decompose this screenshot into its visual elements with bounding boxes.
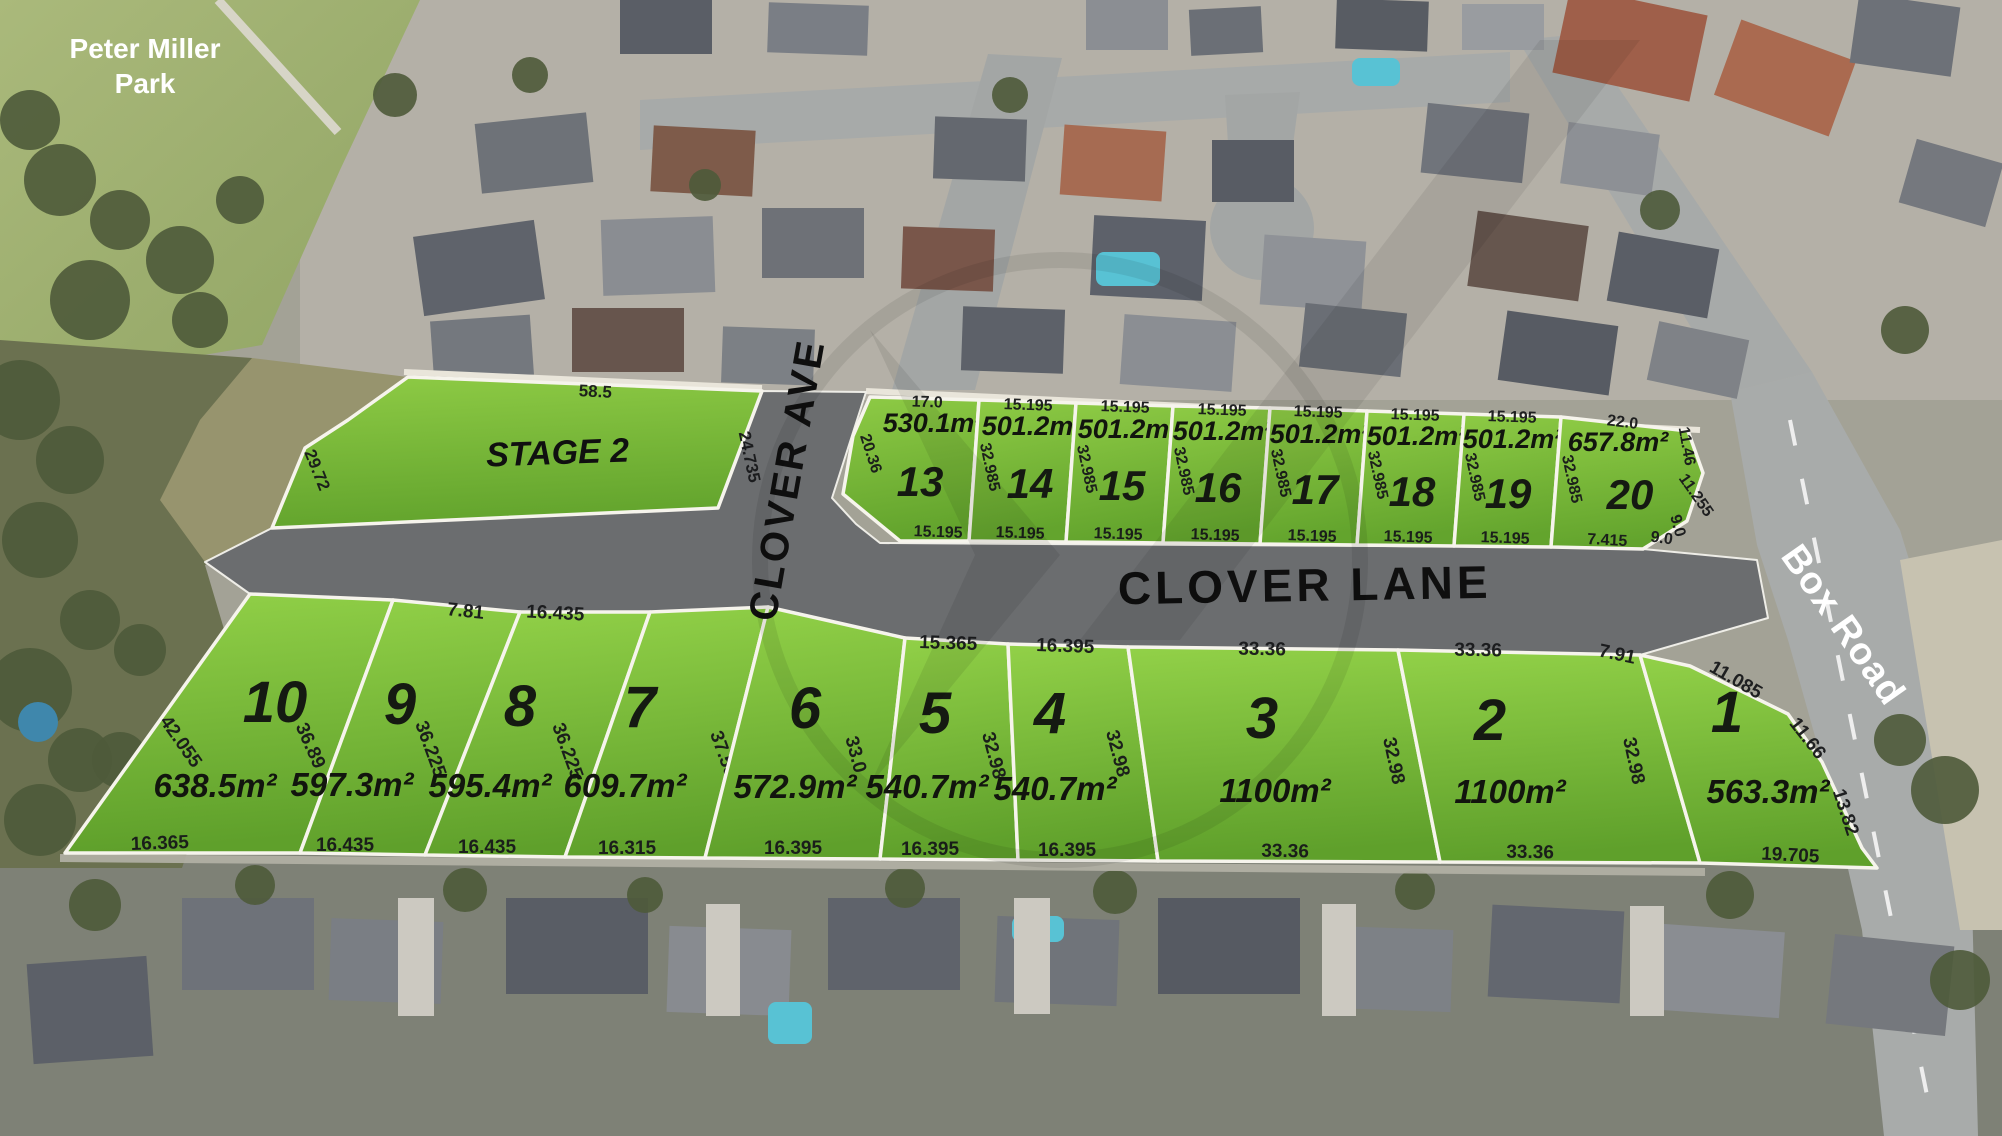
lot-15-area: 501.2m² [1078, 414, 1180, 444]
house-roof [1488, 905, 1625, 1004]
lot-4-area: 540.7m² [994, 770, 1118, 807]
dimension-label: 33.36 [1261, 841, 1309, 863]
house-roof [828, 898, 960, 990]
tree [1911, 756, 1979, 824]
dimension-label: 16.435 [526, 602, 586, 626]
tree [627, 877, 663, 913]
tree [992, 77, 1028, 113]
house-roof [572, 308, 684, 372]
tree [60, 590, 120, 650]
lot-20-area: 657.8m² [1568, 427, 1670, 457]
house-roof [961, 306, 1065, 374]
dimension-label: 16.365 [130, 832, 189, 855]
tree [512, 57, 548, 93]
tree [443, 868, 487, 912]
dimension-label: 15.195 [1480, 529, 1530, 548]
lot-8-number: 8 [504, 674, 537, 739]
dimension-label: 15.195 [1100, 398, 1150, 417]
tree [4, 784, 76, 856]
tree [235, 865, 275, 905]
lot-7-area: 609.7m² [564, 767, 688, 804]
lot-18-number: 18 [1389, 468, 1436, 515]
dimension-label: 58.5 [578, 381, 612, 402]
dimension-label: 15.195 [1093, 525, 1143, 544]
tree [1874, 714, 1926, 766]
house-roof [1462, 4, 1544, 50]
house-roof [1560, 122, 1660, 196]
lot-10-area: 638.5m² [154, 767, 278, 804]
house-roof [1158, 898, 1300, 994]
tree [90, 190, 150, 250]
house-roof [1086, 0, 1168, 50]
dimension-label: 16.435 [458, 837, 517, 858]
lot-19-number: 19 [1485, 470, 1532, 517]
dimension-label: 15.195 [1197, 401, 1247, 420]
house-roof [1335, 0, 1429, 52]
dimension-label: 33.36 [1506, 842, 1554, 864]
lot-15-number: 15 [1099, 462, 1146, 509]
house-roof [27, 956, 154, 1064]
lot-9-area: 597.3m² [291, 766, 415, 803]
lot-3-number: 3 [1246, 686, 1278, 751]
dimension-label: 19.705 [1761, 844, 1821, 868]
tree [114, 624, 166, 676]
house-roof [620, 0, 712, 54]
tree [689, 169, 721, 201]
house-roof [1060, 125, 1167, 202]
house-roof [1657, 924, 1785, 1018]
house-roof [506, 898, 648, 994]
tree [36, 426, 104, 494]
house-roof [1120, 314, 1237, 392]
driveway [706, 904, 740, 1016]
tree [1881, 306, 1929, 354]
tree [172, 292, 228, 348]
tree [0, 90, 60, 150]
stage2-label: STAGE 2 [486, 432, 630, 475]
dimension-label: 33.36 [1454, 640, 1502, 662]
house-roof [1212, 140, 1294, 202]
tree [373, 73, 417, 117]
park-label: Peter Miller [70, 33, 221, 64]
dimension-label: 7.81 [446, 599, 485, 624]
house-roof [1189, 6, 1263, 56]
house-roof [475, 112, 594, 193]
tree [50, 260, 130, 340]
house-roof [767, 2, 869, 55]
dimension-label: 15.195 [913, 523, 963, 542]
lot-18-area: 501.2m² [1367, 421, 1469, 451]
dimension-label: 15.195 [1003, 396, 1053, 415]
tree [1706, 871, 1754, 919]
tree [216, 176, 264, 224]
park-label: Park [115, 68, 176, 99]
swimming-pool [1352, 58, 1400, 86]
lot-7-number: 7 [624, 675, 659, 740]
driveway [1630, 906, 1664, 1016]
tree [1930, 950, 1990, 1010]
lot-2-number: 2 [1473, 688, 1506, 753]
trampoline [18, 702, 58, 742]
swimming-pool [768, 1002, 812, 1044]
tree [146, 226, 214, 294]
house-roof [933, 116, 1027, 181]
tree [885, 868, 925, 908]
dimension-label: 15.195 [1487, 408, 1537, 427]
driveway [1322, 904, 1356, 1016]
dimension-label: 16.315 [598, 838, 657, 859]
tree [24, 144, 96, 216]
dimension-label: 33.36 [1238, 639, 1286, 661]
lot-4-number: 4 [1033, 681, 1066, 746]
dimension-label: 15.195 [1287, 527, 1337, 546]
dimension-label: 16.435 [316, 835, 375, 856]
lot-8-area: 595.4m² [429, 767, 553, 804]
driveway [398, 898, 434, 1016]
house-roof [413, 220, 545, 316]
dimension-label: 15.195 [1390, 406, 1440, 425]
lot-14-number: 14 [1007, 460, 1054, 507]
dimension-label: 16.395 [764, 838, 823, 859]
lot-1-area: 563.3m² [1707, 773, 1831, 810]
house-roof [762, 208, 864, 278]
tree [2, 502, 78, 578]
aerial-subdivision-plan: 58.524.73529.72STAGE 2530.1m²1317.020.36… [0, 0, 2002, 1136]
dimension-label: 9.0 [1649, 529, 1673, 549]
dimension-label: 7.415 [1587, 531, 1628, 550]
lot-19-area: 501.2m² [1463, 424, 1565, 454]
lot-20-number: 20 [1606, 471, 1654, 518]
dimension-label: 15.195 [1383, 528, 1433, 547]
tree [1640, 190, 1680, 230]
lot-14-area: 501.2m² [982, 411, 1084, 441]
lot-2-area: 1100m² [1454, 773, 1566, 810]
driveway [1014, 898, 1050, 1014]
house-roof [601, 216, 716, 296]
plan-svg: 58.524.73529.72STAGE 2530.1m²1317.020.36… [0, 0, 2002, 1136]
tree [1395, 870, 1435, 910]
tree [69, 879, 121, 931]
tree [1093, 870, 1137, 914]
house-roof [182, 898, 314, 990]
